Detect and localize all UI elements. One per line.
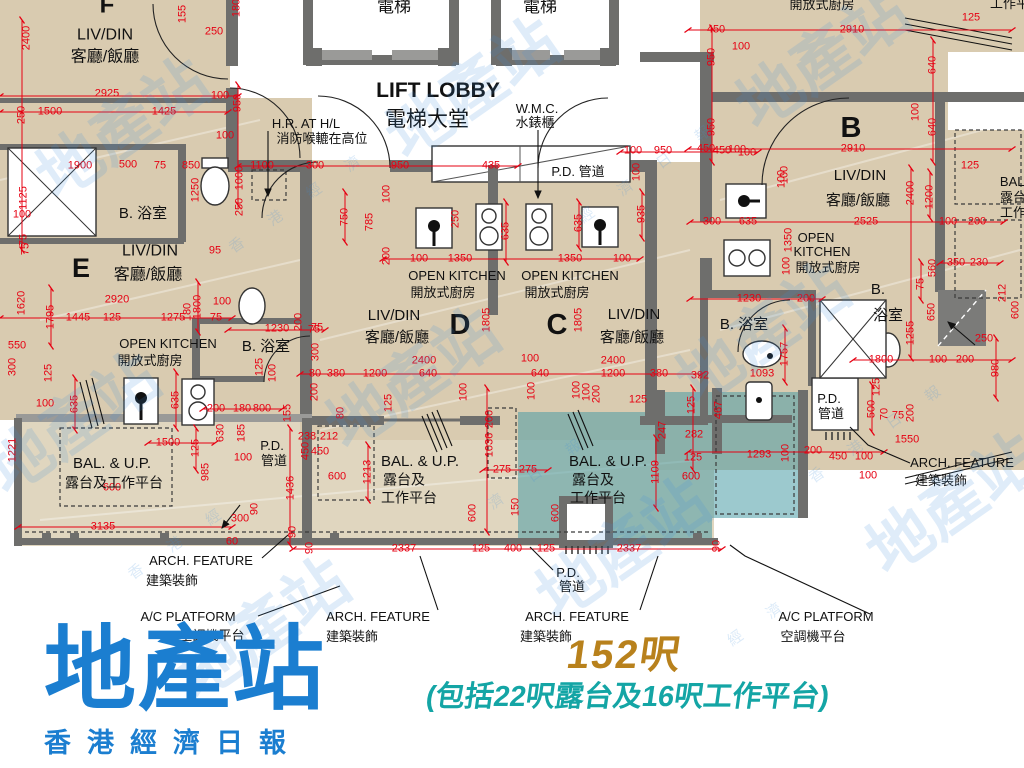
plan-label: 工作平台 bbox=[990, 0, 1024, 11]
dimension-label: 125 bbox=[103, 313, 121, 324]
plan-label: 開放式廚房 bbox=[117, 354, 182, 368]
dimension-label: 640 bbox=[928, 118, 939, 136]
dimension-label: 100 bbox=[521, 354, 539, 365]
dimension-label: 125 bbox=[384, 394, 395, 412]
dimension-label: 212 bbox=[320, 432, 338, 443]
dimension-label: 75 bbox=[308, 325, 320, 336]
dimension-label: 300 bbox=[8, 358, 19, 376]
dimension-label: 125 bbox=[255, 358, 266, 376]
plan-label: 建築裝飾 bbox=[915, 474, 967, 488]
plan-label: OPEN KITCHEN bbox=[408, 269, 506, 283]
dimension-label: 125 bbox=[537, 544, 555, 555]
dimension-label: 1293 bbox=[747, 450, 771, 461]
dimension-label: 180 bbox=[233, 404, 251, 415]
plan-label: D bbox=[450, 310, 471, 340]
plan-label: B. 浴室 bbox=[242, 339, 290, 355]
plan-label: C bbox=[547, 310, 568, 340]
dimension-label: 985 bbox=[201, 463, 212, 481]
toilet-left bbox=[201, 158, 229, 205]
dimension-label: 200 bbox=[310, 383, 321, 401]
dimension-label: 850 bbox=[182, 161, 200, 172]
dimension-label: 1800 bbox=[869, 355, 893, 366]
publisher-logo: 地產站 香港經濟日報 bbox=[44, 622, 326, 760]
dimension-label: 450 bbox=[829, 452, 847, 463]
dimension-label: 100 bbox=[410, 254, 428, 265]
dimension-label: 155 bbox=[178, 5, 189, 23]
dimension-label: 100 bbox=[613, 254, 631, 265]
dimension-label: 90 bbox=[305, 542, 316, 554]
plan-label: W.M.C. bbox=[516, 102, 559, 116]
plan-label: KITCHEN bbox=[793, 245, 850, 259]
dimension-label: 560 bbox=[928, 259, 939, 277]
dimension-label: 2337 bbox=[392, 544, 416, 555]
dimension-label: 75 bbox=[916, 278, 927, 290]
dimension-label: 1213 bbox=[363, 460, 374, 484]
plan-label: P.D. bbox=[556, 566, 580, 580]
dimension-label: 635 bbox=[739, 217, 757, 228]
stove-b bbox=[724, 240, 770, 276]
plan-label: 客廳/飯廳 bbox=[71, 50, 139, 67]
logo-title: 地產站 bbox=[44, 622, 326, 719]
dimension-label: 155 bbox=[283, 404, 294, 422]
dimension-label: 200 bbox=[906, 404, 917, 422]
plan-label: 客廳/飯廳 bbox=[114, 268, 182, 285]
dimension-label: 1800 bbox=[193, 295, 204, 319]
dimension-label: 100 bbox=[36, 399, 54, 410]
dimension-label: 350 bbox=[947, 258, 965, 269]
dimension-label: 75 bbox=[154, 161, 166, 172]
stove-c bbox=[526, 204, 552, 250]
dimension-label: 1500 bbox=[38, 107, 62, 118]
dimension-label: 800 bbox=[253, 404, 271, 415]
dimension-label: 200 bbox=[207, 404, 225, 415]
dimension-label: 200 bbox=[797, 294, 815, 305]
plan-label: 消防喉轆在高位 bbox=[276, 132, 367, 146]
dimension-label: 200 bbox=[592, 385, 603, 403]
dimension-label: 180 bbox=[183, 303, 194, 321]
dimension-label: 450 bbox=[311, 447, 329, 458]
dimension-label: 100 bbox=[782, 257, 793, 275]
dimension-label: 2910 bbox=[840, 25, 864, 36]
dimension-label: 250 bbox=[451, 210, 462, 228]
dimension-label: 1795 bbox=[46, 305, 57, 329]
plan-label: B. 浴室 bbox=[720, 317, 768, 333]
dimension-label: 1230 bbox=[265, 324, 289, 335]
plan-label: 管道 bbox=[261, 454, 287, 468]
dimension-label: 300 bbox=[231, 514, 249, 525]
plan-label: B. bbox=[871, 282, 885, 298]
dimension-label: 1620 bbox=[17, 291, 28, 315]
plan-label: 電梯 bbox=[523, 0, 557, 16]
plan-label: A/C PLATFORM bbox=[778, 610, 873, 624]
dimension-label: 950 bbox=[391, 161, 409, 172]
dimension-label: 75 bbox=[21, 243, 32, 255]
plan-label: OPEN bbox=[798, 231, 835, 245]
dimension-label: 300 bbox=[703, 217, 721, 228]
dimension-label: 1805 bbox=[482, 308, 493, 332]
dimension-label: 635 bbox=[70, 395, 81, 413]
dimension-label: 640 bbox=[531, 369, 549, 380]
plan-label: LIFT LOBBY bbox=[376, 80, 500, 102]
dimension-label: 600 bbox=[1011, 301, 1022, 319]
dimension-label: 1425 bbox=[152, 107, 176, 118]
plan-label: 工作平台 bbox=[381, 491, 437, 506]
floorplan-page: .rl{stroke:#e60012;stroke-width:1;} .wl{… bbox=[0, 0, 1024, 768]
dimension-label: 250 bbox=[975, 334, 993, 345]
kitchen-sink-d bbox=[416, 208, 452, 248]
plan-label: 管道 bbox=[559, 580, 585, 594]
dimension-label: 247 bbox=[658, 421, 669, 439]
dimension-label: 100 bbox=[234, 453, 252, 464]
dimension-label: 1445 bbox=[66, 313, 90, 324]
plan-label: OPEN KITCHEN bbox=[521, 269, 619, 283]
dimension-label: 300 bbox=[311, 343, 322, 361]
dimension-label: 125 bbox=[687, 396, 698, 414]
dimension-label: 950 bbox=[654, 146, 672, 157]
dimension-label: 80 bbox=[309, 369, 321, 380]
plan-label: P.D. bbox=[817, 392, 841, 406]
dimension-label: 450 bbox=[301, 442, 312, 460]
dimension-label: 500 bbox=[867, 400, 878, 418]
dimension-label: 100 bbox=[211, 91, 229, 102]
plan-label: P.D. bbox=[260, 439, 284, 453]
dimension-label: 1200 bbox=[601, 369, 625, 380]
dimension-label: 100 bbox=[382, 185, 393, 203]
plan-label: BAL. & U.P. bbox=[73, 456, 151, 472]
dimension-label: 1500 bbox=[156, 438, 180, 449]
dimension-label: 75 bbox=[210, 313, 222, 324]
plan-label: 建築裝飾 bbox=[146, 574, 198, 588]
dimension-label: 95 bbox=[209, 246, 221, 257]
kitchen-sink-e bbox=[124, 378, 158, 424]
plan-label: 客廳/飯廳 bbox=[365, 330, 429, 346]
dimension-label: 450 bbox=[697, 144, 715, 155]
plan-label: LIV/DIN bbox=[368, 308, 421, 324]
dimension-label: 600 bbox=[551, 504, 562, 522]
dimension-label: 2925 bbox=[95, 89, 119, 100]
dimension-label: 2525 bbox=[854, 217, 878, 228]
dimension-label: 200 bbox=[382, 247, 393, 265]
dimension-label: 200 bbox=[294, 313, 305, 331]
plan-label: OPEN KITCHEN bbox=[119, 337, 217, 351]
dimension-label: 150 bbox=[511, 498, 522, 516]
dimension-label: 1350 bbox=[448, 254, 472, 265]
plan-label: 露台及 bbox=[383, 473, 425, 488]
dimension-label: 1350 bbox=[558, 254, 582, 265]
dimension-label: 980 bbox=[991, 359, 1002, 377]
plan-label: F bbox=[100, 0, 115, 18]
plan-label: LIV/DIN bbox=[122, 244, 178, 261]
plan-label: 開放式廚房 bbox=[524, 286, 589, 300]
plan-label: 開放式廚房 bbox=[410, 286, 475, 300]
dimension-label: 2920 bbox=[105, 295, 129, 306]
plan-label: 開放式廚房 bbox=[789, 0, 854, 12]
dimension-label: 635 bbox=[171, 391, 182, 409]
plan-label: E bbox=[72, 254, 90, 282]
dimension-label: 392 bbox=[691, 371, 709, 382]
dimension-label: 1093 bbox=[750, 369, 774, 380]
dimension-label: 100 bbox=[624, 146, 642, 157]
dimension-label: 100 bbox=[268, 364, 279, 382]
plan-label: 工作平台 bbox=[570, 491, 626, 506]
dimension-label: 635 bbox=[501, 222, 512, 240]
dimension-label: 2400 bbox=[601, 356, 625, 367]
dimension-label: 1000 bbox=[235, 166, 246, 190]
dimension-label: 1250 bbox=[191, 178, 202, 202]
kitchen-sink-c bbox=[582, 207, 618, 247]
dimension-label: 1200 bbox=[363, 369, 387, 380]
dimension-label: 212 bbox=[998, 284, 1009, 302]
logo-subtitle: 香港經濟日報 bbox=[44, 721, 326, 760]
dimension-label: 380 bbox=[650, 369, 668, 380]
dimension-label: 200 bbox=[968, 217, 986, 228]
dimension-label: 75 bbox=[892, 411, 904, 422]
dimension-label: 100 bbox=[855, 452, 873, 463]
plan-label: 空調機平台 bbox=[780, 630, 845, 644]
dimension-label: 1036 bbox=[485, 433, 496, 457]
dimension-label: 1221 bbox=[8, 438, 19, 462]
dimension-label: 200 bbox=[485, 410, 496, 428]
unit-area-note: (包括22呎露台及16呎工作平台) bbox=[424, 673, 833, 715]
dimension-label: 100 bbox=[572, 381, 583, 399]
dimension-label: 935 bbox=[637, 205, 648, 223]
dimension-label: 1550 bbox=[895, 435, 919, 446]
stove-d bbox=[476, 204, 502, 250]
dimension-label: 125 bbox=[962, 13, 980, 24]
plan-label: 管道 bbox=[818, 407, 844, 421]
dimension-label: 750 bbox=[340, 208, 351, 226]
dimension-label: 500 bbox=[119, 160, 137, 171]
plan-label: 露台 bbox=[1000, 191, 1024, 205]
dimension-label: 635 bbox=[574, 214, 585, 232]
dimension-label: 90 bbox=[250, 503, 261, 515]
dimension-label: 640 bbox=[419, 369, 437, 380]
dimension-label: 100 bbox=[859, 471, 877, 482]
dimension-label: 2400 bbox=[22, 26, 33, 50]
dimension-label: 100 bbox=[13, 210, 31, 221]
dimension-label: 380 bbox=[327, 369, 345, 380]
dimension-label: 785 bbox=[365, 213, 376, 231]
dimension-label: 100 bbox=[939, 217, 957, 228]
dimension-label: 80 bbox=[336, 407, 347, 419]
dimension-label: 600 bbox=[682, 472, 700, 483]
dimension-label: 435 bbox=[482, 161, 500, 172]
plan-label: BAL. bbox=[1000, 175, 1024, 189]
plan-label: 水錶櫃 bbox=[515, 116, 554, 130]
dimension-label: 1436 bbox=[286, 476, 297, 500]
dimension-label: 467 bbox=[714, 401, 725, 419]
dimension-label: 125 bbox=[629, 395, 647, 406]
dimension-label: 60 bbox=[226, 537, 238, 548]
dimension-label: 1200 bbox=[925, 185, 936, 209]
plan-label: BAL. & U.P. bbox=[381, 454, 459, 470]
dimension-label: 950 bbox=[707, 48, 718, 66]
dimension-label: 90 bbox=[288, 526, 299, 538]
dimension-label: 650 bbox=[927, 303, 938, 321]
plan-label: ARCH. FEATURE bbox=[149, 554, 253, 568]
kitchen-sink-b bbox=[726, 184, 766, 218]
dimension-label: 2400 bbox=[906, 181, 917, 205]
dimension-label: 100 bbox=[728, 145, 746, 156]
dimension-label: 2400 bbox=[412, 356, 436, 367]
dimension-label: 230 bbox=[970, 258, 988, 269]
dimension-label: 100 bbox=[527, 382, 538, 400]
dimension-label: 100 bbox=[911, 103, 922, 121]
plan-label: 露台及 bbox=[572, 473, 614, 488]
plan-label: 電梯 bbox=[377, 0, 411, 16]
plan-label: LIV/DIN bbox=[608, 307, 661, 323]
plan-label: ARCH. FEATURE bbox=[910, 456, 1014, 470]
dimension-label: 125 bbox=[472, 544, 490, 555]
dimension-label: 600 bbox=[328, 472, 346, 483]
dimension-label: 1230 bbox=[737, 294, 761, 305]
dimension-label: 90 bbox=[712, 540, 723, 552]
dimension-label: 630 bbox=[216, 424, 227, 442]
dimension-label: 640 bbox=[928, 56, 939, 74]
plan-label: 露台及工作平台 bbox=[65, 476, 163, 491]
dimension-label: 100 bbox=[780, 166, 791, 184]
toilet-middle bbox=[239, 288, 265, 324]
dimension-label: 100 bbox=[459, 383, 470, 401]
plan-label: LIV/DIN bbox=[77, 28, 133, 45]
dimension-label: 100 bbox=[213, 297, 231, 308]
dimension-label: 550 bbox=[8, 341, 26, 352]
dimension-label: 1900 bbox=[68, 161, 92, 172]
plan-label: P.D. 管道 bbox=[551, 165, 604, 179]
dimension-label: 1255 bbox=[906, 321, 917, 345]
toilet-right bbox=[743, 341, 781, 367]
plan-label: H.R. AT H/L bbox=[272, 117, 340, 131]
plan-label: BAL. & U.P. bbox=[569, 454, 647, 470]
plan-label: LIV/DIN bbox=[834, 168, 887, 184]
dimension-label: 275 bbox=[493, 465, 511, 476]
dimension-label: 600 bbox=[468, 504, 479, 522]
plan-label: 浴室 bbox=[873, 308, 903, 324]
dimension-label: 125 bbox=[191, 439, 202, 457]
dimension-label: 100 bbox=[216, 131, 234, 142]
dimension-label: 100 bbox=[781, 444, 792, 462]
dimension-label: 300 bbox=[306, 161, 324, 172]
dimension-label: 2337 bbox=[617, 544, 641, 555]
dimension-label: 1805 bbox=[574, 308, 585, 332]
dimension-label: 3135 bbox=[91, 522, 115, 533]
dimension-label: 100 bbox=[632, 163, 643, 181]
dimension-label: 1125 bbox=[19, 186, 30, 210]
plan-label: 客廳/飯廳 bbox=[826, 193, 890, 209]
dimension-label: 200 bbox=[804, 446, 822, 457]
dimension-label: 282 bbox=[685, 430, 703, 441]
dimension-label: 125 bbox=[961, 161, 979, 172]
plan-label: 工作 bbox=[1000, 206, 1024, 220]
dimension-label: 125 bbox=[872, 378, 883, 396]
plan-label: 建築裝飾 bbox=[520, 630, 572, 644]
plan-label: 客廳/飯廳 bbox=[600, 330, 664, 346]
dimension-label: 100 bbox=[929, 355, 947, 366]
dimension-label: 185 bbox=[237, 424, 248, 442]
dimension-label: 275 bbox=[519, 465, 537, 476]
plan-label: ARCH. FEATURE bbox=[326, 610, 430, 624]
dimension-label: 100 bbox=[732, 42, 750, 53]
dimension-label: 1100 bbox=[250, 161, 274, 172]
plan-label: 電梯大堂 bbox=[385, 109, 469, 131]
dimension-label: 250 bbox=[205, 27, 223, 38]
dimension-label: 400 bbox=[504, 544, 522, 555]
basin-right bbox=[746, 382, 772, 420]
dimension-label: 200 bbox=[956, 355, 974, 366]
dimension-label: 250 bbox=[235, 198, 246, 216]
dimension-label: 125 bbox=[44, 364, 55, 382]
plan-label: 建築裝飾 bbox=[326, 630, 378, 644]
dimension-label: 2910 bbox=[841, 144, 865, 155]
dimension-label: 250 bbox=[17, 106, 28, 124]
dimension-label: 70 bbox=[880, 408, 891, 420]
dimension-label: 950 bbox=[707, 118, 718, 136]
dimension-label: 950 bbox=[233, 94, 244, 112]
dimension-label: 450 bbox=[707, 25, 725, 36]
plan-label: 開放式廚房 bbox=[795, 261, 860, 275]
dimension-label: 125 bbox=[684, 453, 702, 464]
dimension-label: 1757 bbox=[780, 342, 791, 366]
dimension-label: 180 bbox=[232, 0, 243, 17]
plan-label: B. 浴室 bbox=[119, 206, 167, 222]
unit-area-text: 152呎 bbox=[564, 622, 687, 680]
plan-label: B bbox=[841, 113, 862, 143]
dimension-label: 1109 bbox=[651, 460, 662, 484]
